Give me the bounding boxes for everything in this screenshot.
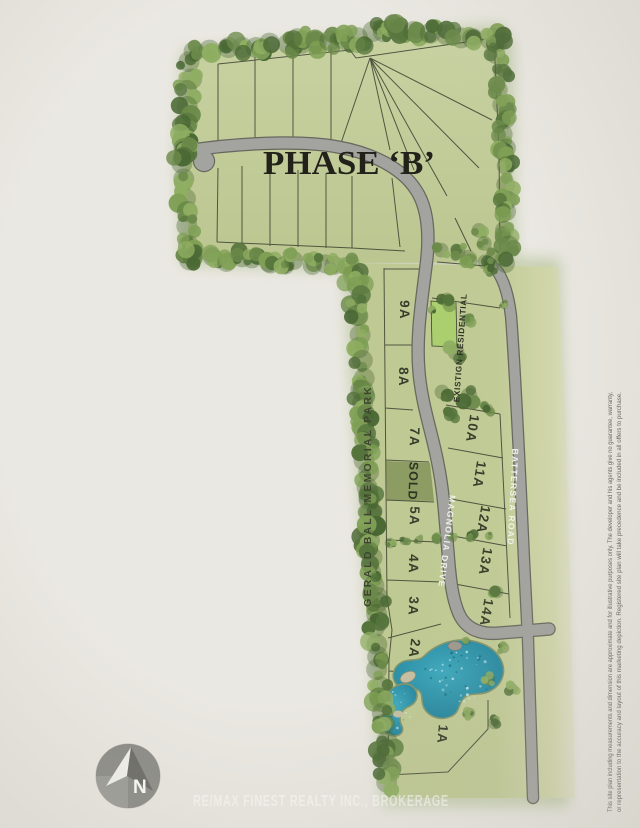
lot-label-8a: 8A [396, 367, 411, 387]
phase-title: PHASE ‘B’ [263, 145, 435, 182]
pond-boulder [448, 642, 462, 651]
lot-label-sold: SOLD [405, 462, 420, 501]
lot-label-4a: 4A [406, 554, 421, 574]
lot-label-5a: 5A [407, 506, 423, 526]
lot-label-9a: 9A [397, 300, 412, 320]
lot-label-3a: 3A [405, 596, 421, 616]
site-plan-svg: PHASE ‘B’ 9A 8A 7A SOLD 5A 4A 3A 2A 1A 1… [0, 0, 640, 828]
site-plan-page: PHASE ‘B’ 9A 8A 7A SOLD 5A 4A 3A 2A 1A 1… [0, 0, 640, 828]
lot-label-1a: 1A [434, 724, 451, 745]
brokerage-watermark: RE/MAX FINEST REALTY INC., BROKERAGE [193, 793, 449, 810]
road-label-gerald-ball-memorial-park: GERALD BALL MEMORIAL PARK [362, 385, 374, 607]
lot-label-7a: 7A [407, 427, 423, 447]
compass-north-indicator: N [96, 744, 160, 808]
lot-label-2a: 2A [406, 638, 423, 659]
disclaimer-line-2: or representation to the accuracy and la… [617, 392, 623, 812]
compass-north-label: N [133, 777, 147, 798]
disclaimer-line-1: This site plan including measurements an… [608, 392, 614, 812]
